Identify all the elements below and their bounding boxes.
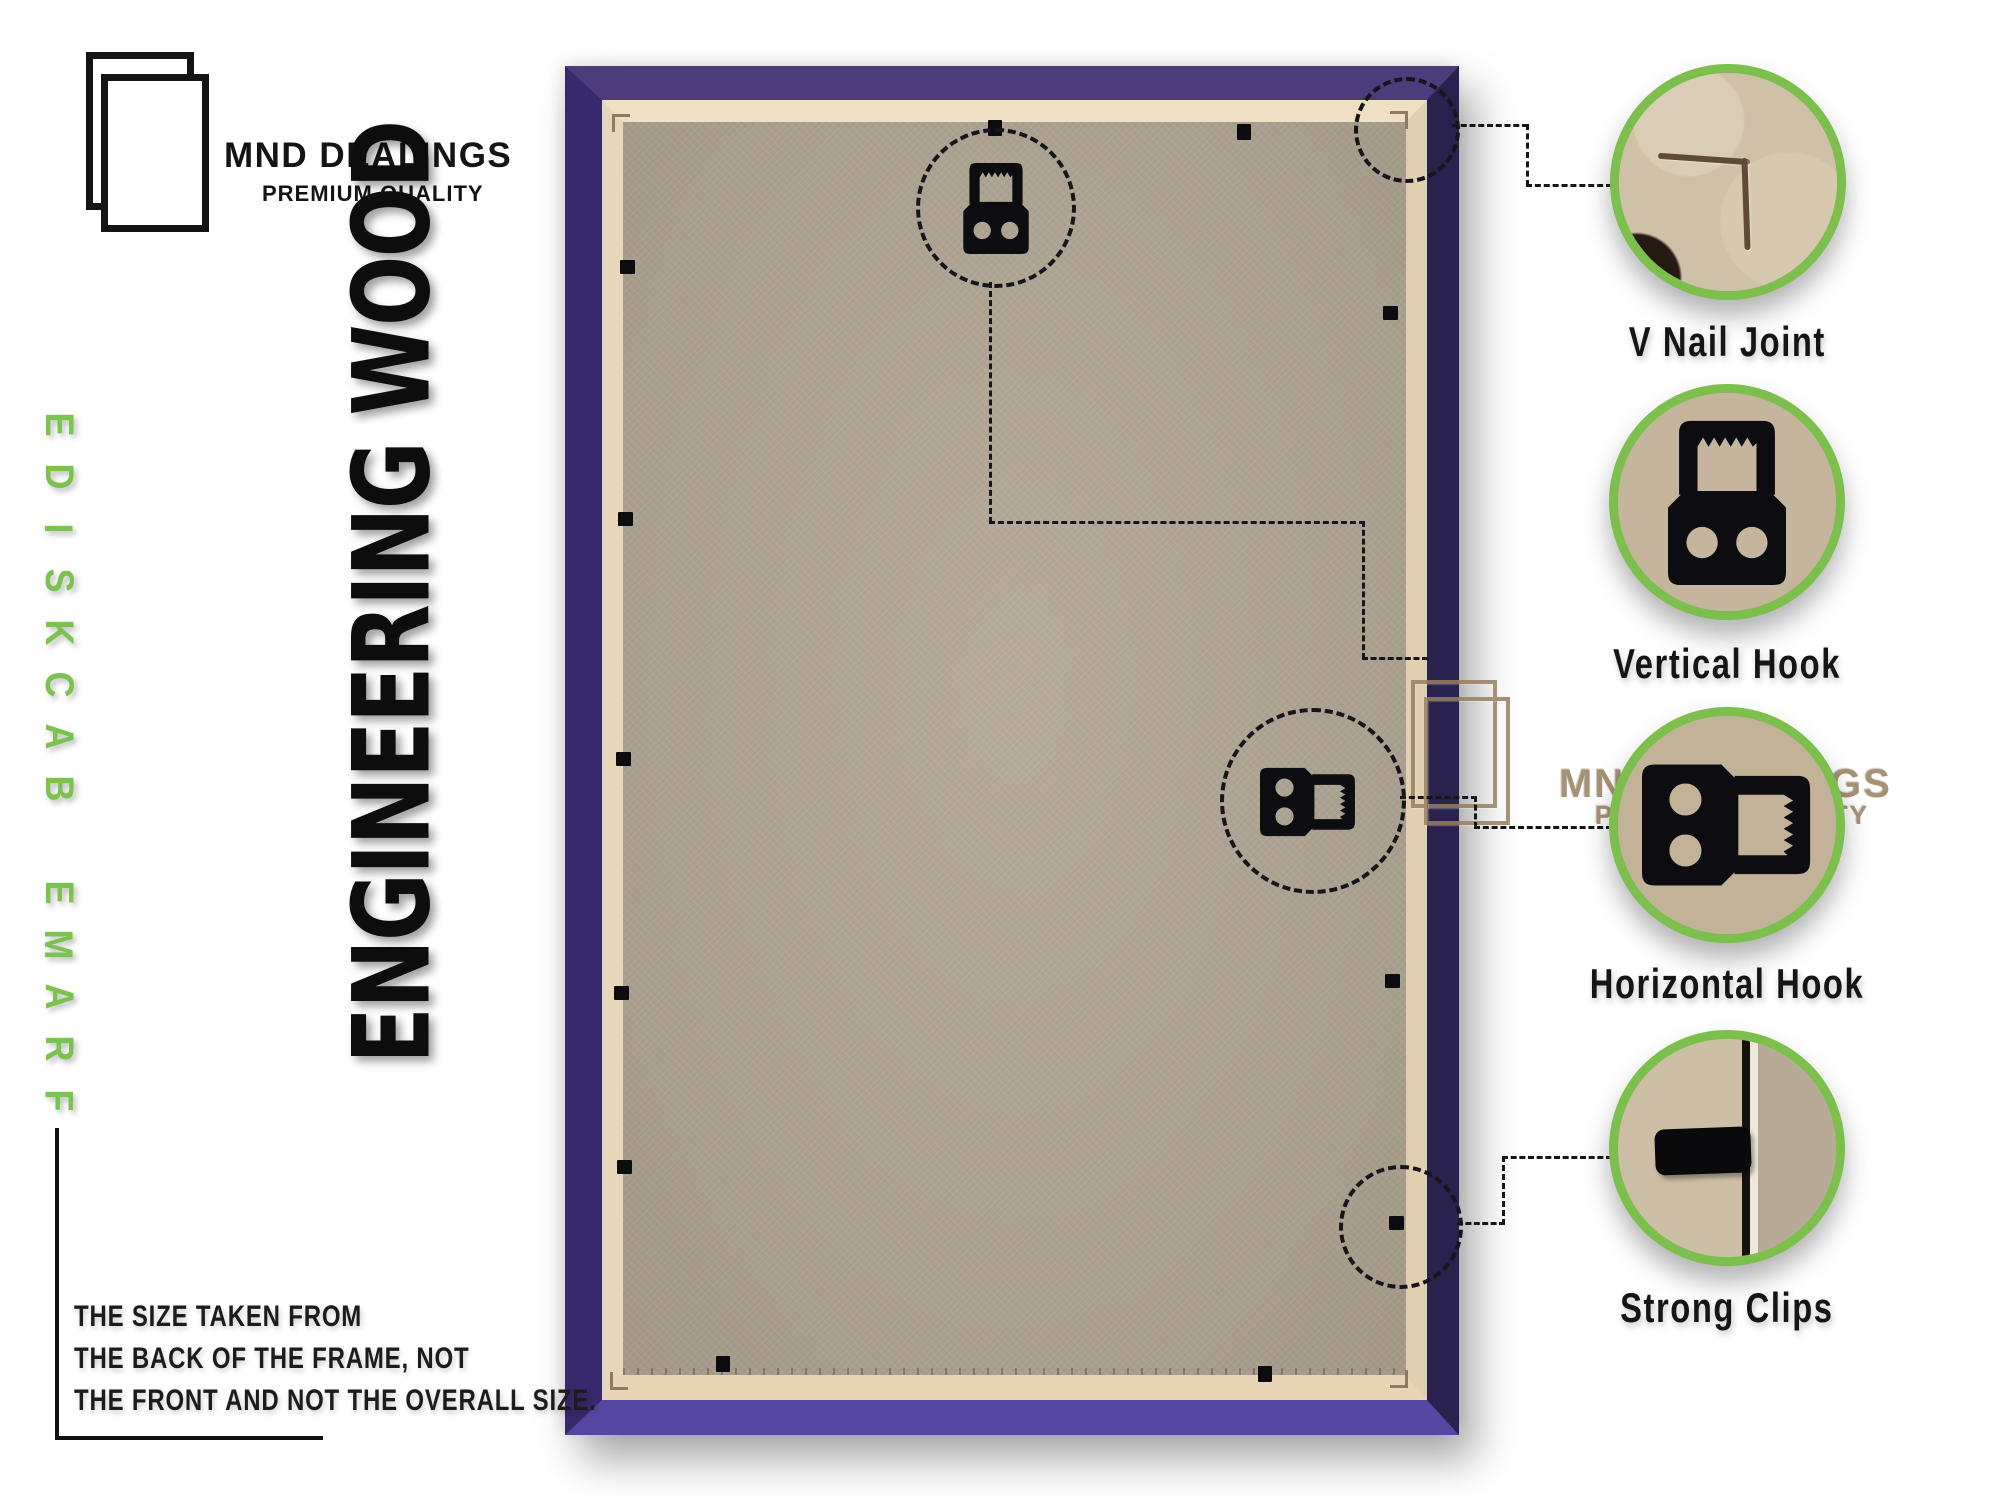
connector-horizontal-hook: [1474, 796, 1477, 828]
callout-label-v-nail-joint: V Nail Joint: [1527, 318, 1927, 366]
v-nail-groove-icon: [1658, 153, 1750, 165]
clip-marker: [1385, 974, 1400, 988]
rail-letter: A: [35, 983, 80, 1009]
highlight-circle-strong-clips: [1339, 1165, 1463, 1289]
connector-vertical-hook: [989, 521, 1365, 524]
zoom-circle-vertical-hook: [1609, 384, 1845, 620]
callout-label-horizontal-hook: Horizontal Hook: [1527, 960, 1927, 1008]
zoom-circle-horizontal-hook: [1609, 707, 1845, 943]
rail-letter: I: [36, 523, 81, 533]
note-rule-horizontal: [55, 1436, 323, 1440]
rail-letter: A: [35, 723, 80, 749]
clip-marker: [614, 986, 629, 1000]
connector-strong-clips: [1502, 1156, 1505, 1225]
vertical-hook-photo: [1618, 393, 1836, 611]
connector-horizontal-hook: [1400, 796, 1477, 799]
connector-horizontal-hook: [1474, 826, 1612, 829]
highlight-circle-v-nail-joint: [1354, 77, 1460, 183]
clip-marker: [1258, 1366, 1272, 1382]
connector-vertical-hook: [1362, 657, 1428, 660]
clip-marker: [617, 1160, 632, 1174]
frame-backside-vertical-label: EDISKCABEMARF: [26, 398, 90, 1126]
connector-v-nail-joint: [1526, 184, 1612, 187]
connector-v-nail-joint: [1452, 124, 1528, 127]
clip-marker: [620, 260, 635, 274]
rail-letter: C: [35, 671, 80, 697]
zoom-circle-strong-clips: [1609, 1030, 1845, 1266]
corner-mark-icon: [612, 114, 630, 132]
rail-letter: R: [35, 1035, 80, 1061]
rail-letter: B: [35, 775, 80, 801]
rail-letter: K: [35, 619, 80, 645]
rail-letter: E: [36, 880, 81, 904]
clip-marker: [1237, 124, 1251, 140]
size-note-line-2: THE BACK OF THE FRAME, NOT: [74, 1342, 568, 1382]
rail-letter: F: [36, 1089, 81, 1111]
horizontal-hook-photo: [1618, 716, 1836, 934]
brand-logo-rect-front: [101, 74, 209, 232]
clip-marker: [616, 752, 631, 766]
connector-v-nail-joint: [1526, 124, 1529, 186]
rail-letter: M: [35, 929, 80, 959]
frame-edge-shade: [1749, 1039, 1836, 1257]
callout-label-vertical-hook: Vertical Hook: [1527, 640, 1927, 688]
watermark-logo-icon: [1424, 697, 1510, 825]
vertical-hook-icon: [1668, 419, 1786, 585]
bottom-seam-ticks: [623, 1368, 1404, 1375]
engineering-wood-label: ENGINEERING WOOD: [322, 148, 462, 1036]
horizontal-hook-icon: [1642, 764, 1812, 886]
clip-marker: [618, 512, 633, 526]
highlight-circle-vertical-hook: [916, 128, 1076, 288]
callout-label-strong-clips: Strong Clips: [1527, 1284, 1927, 1332]
strong-clips-photo: [1618, 1039, 1836, 1257]
strong-clip-icon: [1654, 1127, 1751, 1176]
note-rule-vertical: [55, 1128, 59, 1438]
connector-strong-clips: [1457, 1222, 1505, 1225]
rail-letter: D: [35, 463, 80, 489]
size-note-line-1: THE SIZE TAKEN FROM: [74, 1300, 434, 1340]
rail-letter: E: [36, 412, 81, 436]
clip-marker: [1383, 306, 1398, 320]
highlight-circle-horizontal-hook: [1220, 708, 1406, 894]
connector-vertical-hook: [989, 282, 992, 523]
clip-marker: [716, 1356, 730, 1372]
v-nail-groove-icon: [1742, 158, 1751, 250]
size-note-line-3: THE FRONT AND NOT THE OVERALL SIZE.: [74, 1384, 727, 1424]
zoom-circle-v-nail-joint: [1610, 64, 1846, 300]
connector-strong-clips: [1502, 1156, 1612, 1159]
rail-letter: S: [36, 568, 81, 592]
connector-vertical-hook: [1362, 521, 1365, 659]
v-nail-joint-photo: [1619, 73, 1837, 291]
